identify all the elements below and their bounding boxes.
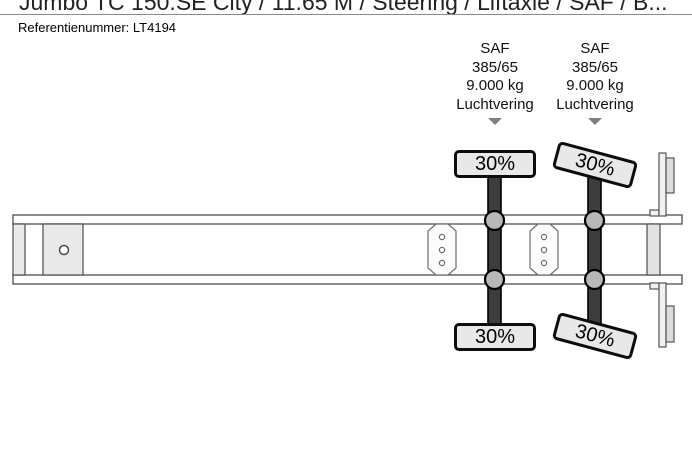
crossmember-2 [530, 224, 558, 275]
rear-bumper-bottom [650, 283, 674, 347]
front-end-cap [13, 224, 25, 275]
axle1-shaft [488, 162, 501, 340]
axle2-shaft [588, 170, 601, 332]
kingpin-plate [43, 224, 83, 275]
axle1-top-wheel-load: 30% [454, 150, 536, 178]
axle1-bottom-wheel-load: 30% [454, 323, 536, 351]
trailer-listing-diagram: Jumbo TC 150.SE City / 11.65 M / Steerin… [0, 0, 692, 460]
frame-rails [13, 215, 682, 284]
rear-crossmember [647, 224, 660, 275]
kingpin [60, 246, 69, 255]
rear-bumper-top [650, 153, 674, 216]
chassis-top-view-graphic [0, 0, 692, 460]
crossmember-1 [428, 224, 456, 275]
